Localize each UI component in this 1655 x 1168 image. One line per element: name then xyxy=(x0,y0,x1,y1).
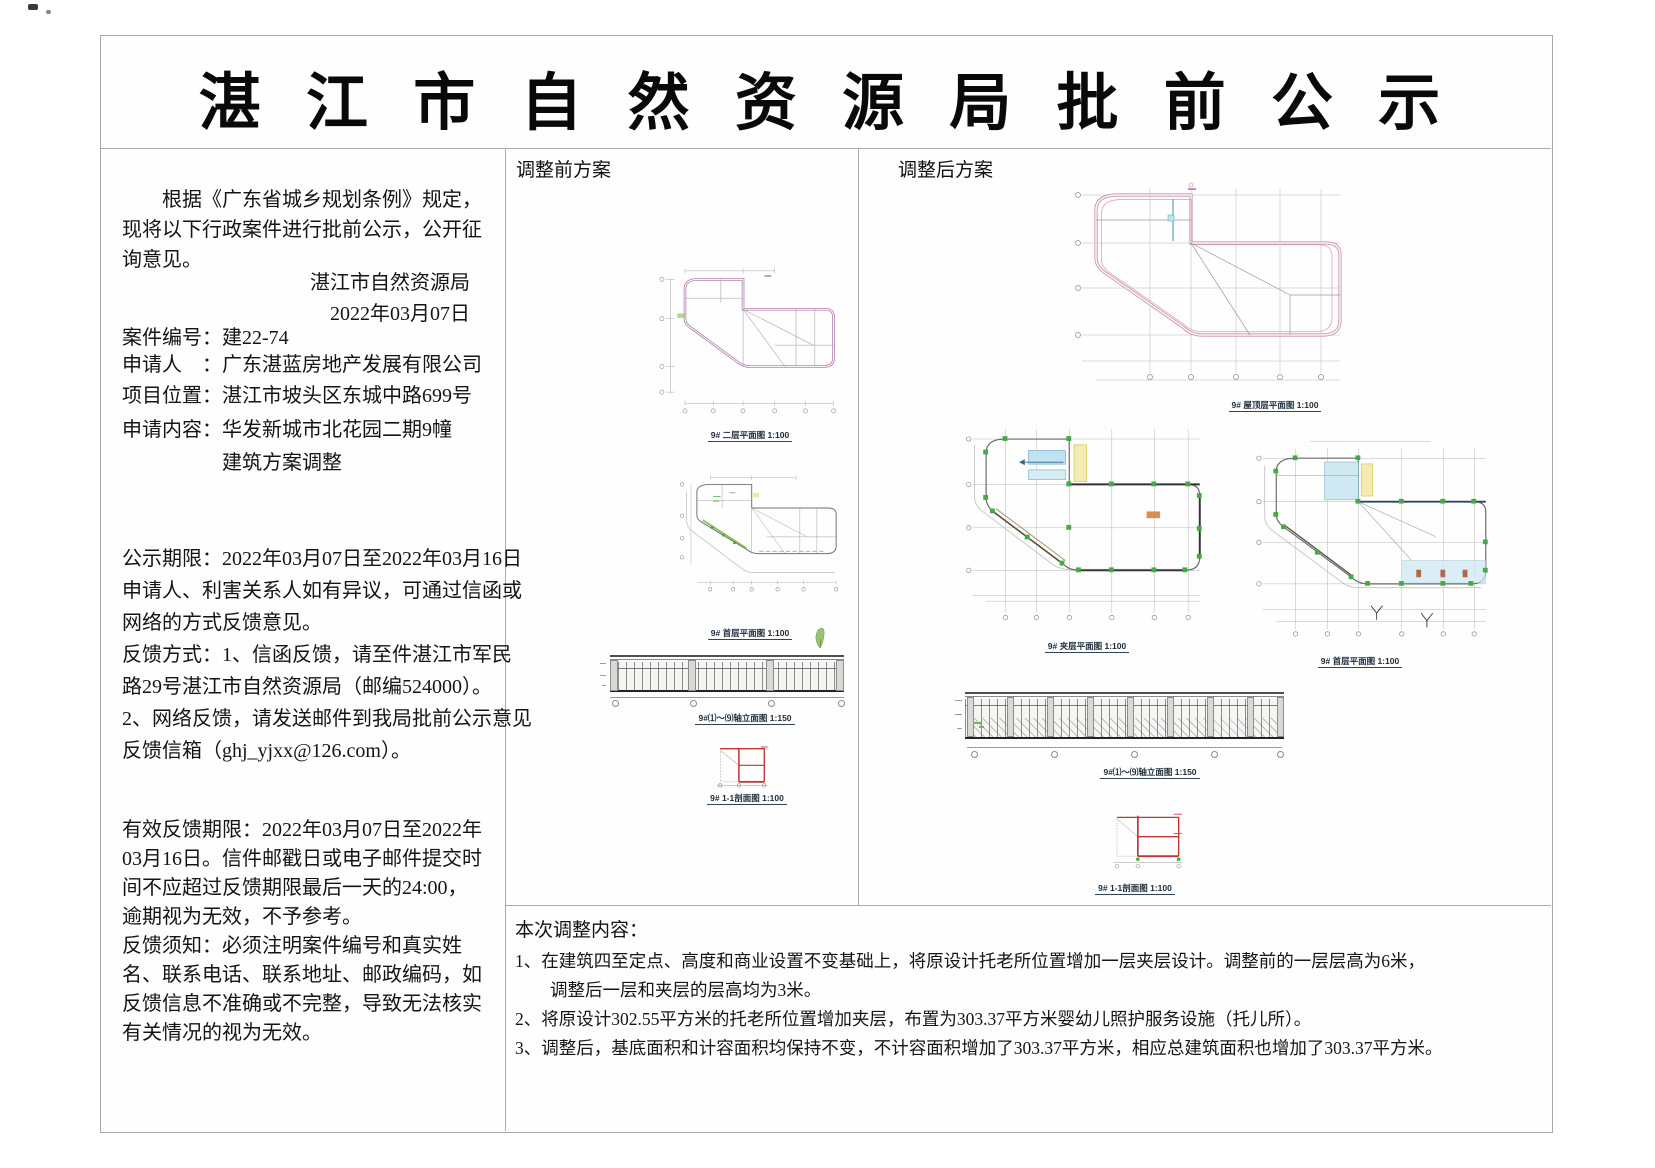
notice-period-paragraph: 公示期限：2022年03月07日至2022年03月16日 申请人、利害关系人如有… xyxy=(122,543,532,767)
leaf-icon xyxy=(811,626,829,650)
adjustments-items: 1、在建筑四至定点、高度和商业设置不变基础上，将原设计托老所位置增加一层夹层设计… xyxy=(515,947,1443,1063)
page-title: 湛 江 市 自 然 资 源 局 批 前 公 示 xyxy=(100,52,1553,142)
adjustments-heading: 本次调整内容： xyxy=(515,915,648,942)
application-content-line2: 建筑方案调整 xyxy=(122,448,342,478)
after-elevation-caption: 9#⑴～⑼轴立面图 1:150 xyxy=(1065,766,1235,778)
title-divider xyxy=(100,148,1551,149)
scan-artifact xyxy=(28,4,38,10)
after-mezzanine-plan xyxy=(932,412,1222,634)
before-elevation-drawing xyxy=(600,655,850,707)
before-panel-label: 调整前方案 xyxy=(516,155,611,182)
valid-feedback-paragraph: 有效反馈期限：2022年03月07日至2022年 03月16日。信件邮戳日或电子… xyxy=(122,816,482,1048)
after-ground-floor-plan xyxy=(1228,428,1508,650)
before-ground-floor-plan xyxy=(648,470,848,603)
scan-artifact xyxy=(46,10,51,14)
before-second-floor-caption: 9# 二层平面图 1:100 xyxy=(690,429,810,441)
after-elevation-drawing xyxy=(955,684,1290,760)
adjustments-divider xyxy=(505,905,1551,906)
before-ground-floor-caption: 9# 首层平面图 1:100 xyxy=(690,627,810,639)
before-section-caption: 9# 1-1剖面图 1:100 xyxy=(672,792,822,804)
after-roof-plan xyxy=(1040,175,1350,390)
after-panel-label: 调整后方案 xyxy=(898,155,993,182)
before-elevation-caption: 9#⑴～⑼轴立面图 1:150 xyxy=(670,712,820,724)
case-number: 案件编号：建22-74 xyxy=(122,323,289,353)
after-ground-floor-caption: 9# 首层平面图 1:100 xyxy=(1280,655,1440,667)
before-second-floor-plan xyxy=(638,264,843,422)
application-content: 申请内容：华发新城市北花园二期9幢 xyxy=(122,415,452,445)
after-mezzanine-caption: 9# 夹层平面图 1:100 xyxy=(1012,640,1162,652)
after-roof-caption: 9# 屋顶层平面图 1:100 xyxy=(1195,399,1355,411)
applicant: 申请人 ：广东湛蓝房地产发展有限公司 xyxy=(122,350,482,380)
project-location: 项目位置：湛江市坡头区东城中路699号 xyxy=(122,381,472,411)
before-section-drawing xyxy=(705,740,777,788)
after-section-drawing xyxy=(1092,808,1192,874)
after-section-caption: 9# 1-1剖面图 1:100 xyxy=(1055,882,1215,894)
issuing-agency: 湛江市自然资源局 xyxy=(122,268,470,299)
panel-divider xyxy=(858,148,859,905)
intro-paragraph: 根据《广东省城乡规划条例》规定， 现将以下行政案件进行批前公示，公开征 询意见。 xyxy=(122,185,482,275)
